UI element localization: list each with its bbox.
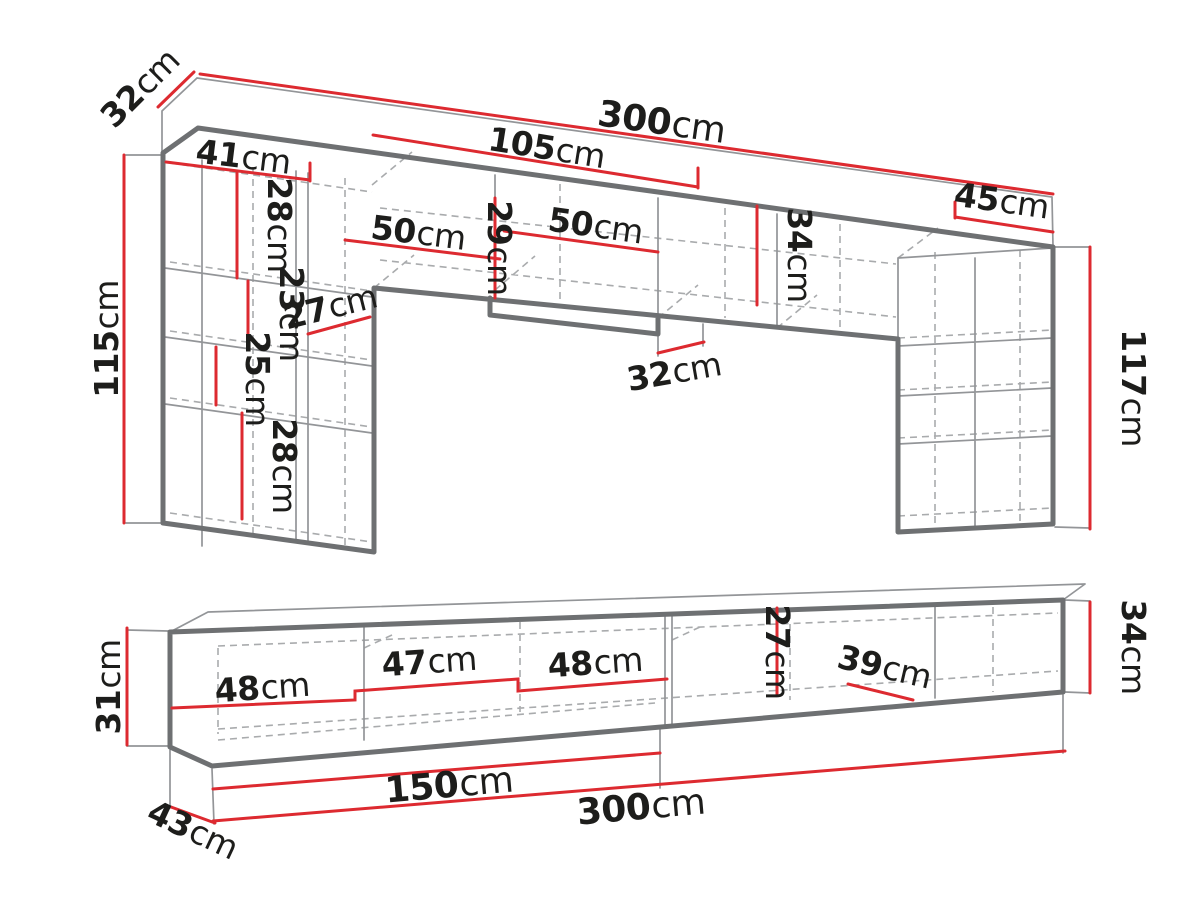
- dim-label-left-col-height-115: 115cm: [87, 280, 126, 398]
- furniture-dimension-diagram: 32cm 300cm 105cm 45cm 115cm 117cm 41cm 2…: [0, 0, 1200, 900]
- dim-label-bridge-gap-34: 34cm: [780, 207, 819, 302]
- dim-label-upper-gap-28: 28cm: [260, 177, 299, 272]
- dim-label-bridge-gap-29: 29cm: [480, 200, 519, 295]
- dim-label-lower-gap-28: 28cm: [265, 418, 304, 513]
- dim-label-tv-depth-43: 43cm: [141, 792, 244, 868]
- dim-label-tv-comp-47: 47cm: [380, 639, 478, 685]
- dim-label-inner-gap-25: 25cm: [238, 331, 277, 426]
- dimension-labels: 32cm 300cm 105cm 45cm 115cm 117cm 41cm 2…: [87, 40, 1153, 867]
- dim-label-tv-height-31: 31cm: [89, 639, 128, 734]
- dim-label-tv-comp-48-right: 48cm: [546, 640, 644, 686]
- dim-label-comp-50-left: 50cm: [369, 207, 468, 257]
- dim-label-mid-depth-32: 32cm: [624, 344, 725, 399]
- dim-label-tv-gap-27: 27cm: [758, 604, 797, 699]
- dim-label-right-col-height-117: 117cm: [1114, 329, 1153, 447]
- dim-label-tv-comp-48-left: 48cm: [213, 665, 311, 711]
- dim-label-top-depth-32: 32cm: [92, 40, 187, 135]
- dim-label-tv-comp-39: 39cm: [834, 637, 936, 696]
- dim-label-comp-50-right: 50cm: [546, 200, 646, 252]
- dim-label-top-width-300: 300cm: [595, 93, 728, 151]
- diagram-canvas: 32cm 300cm 105cm 45cm 115cm 117cm 41cm 2…: [0, 0, 1200, 900]
- dim-label-tv-width-150: 150cm: [383, 760, 515, 812]
- dim-label-tv-height-34: 34cm: [1114, 599, 1153, 694]
